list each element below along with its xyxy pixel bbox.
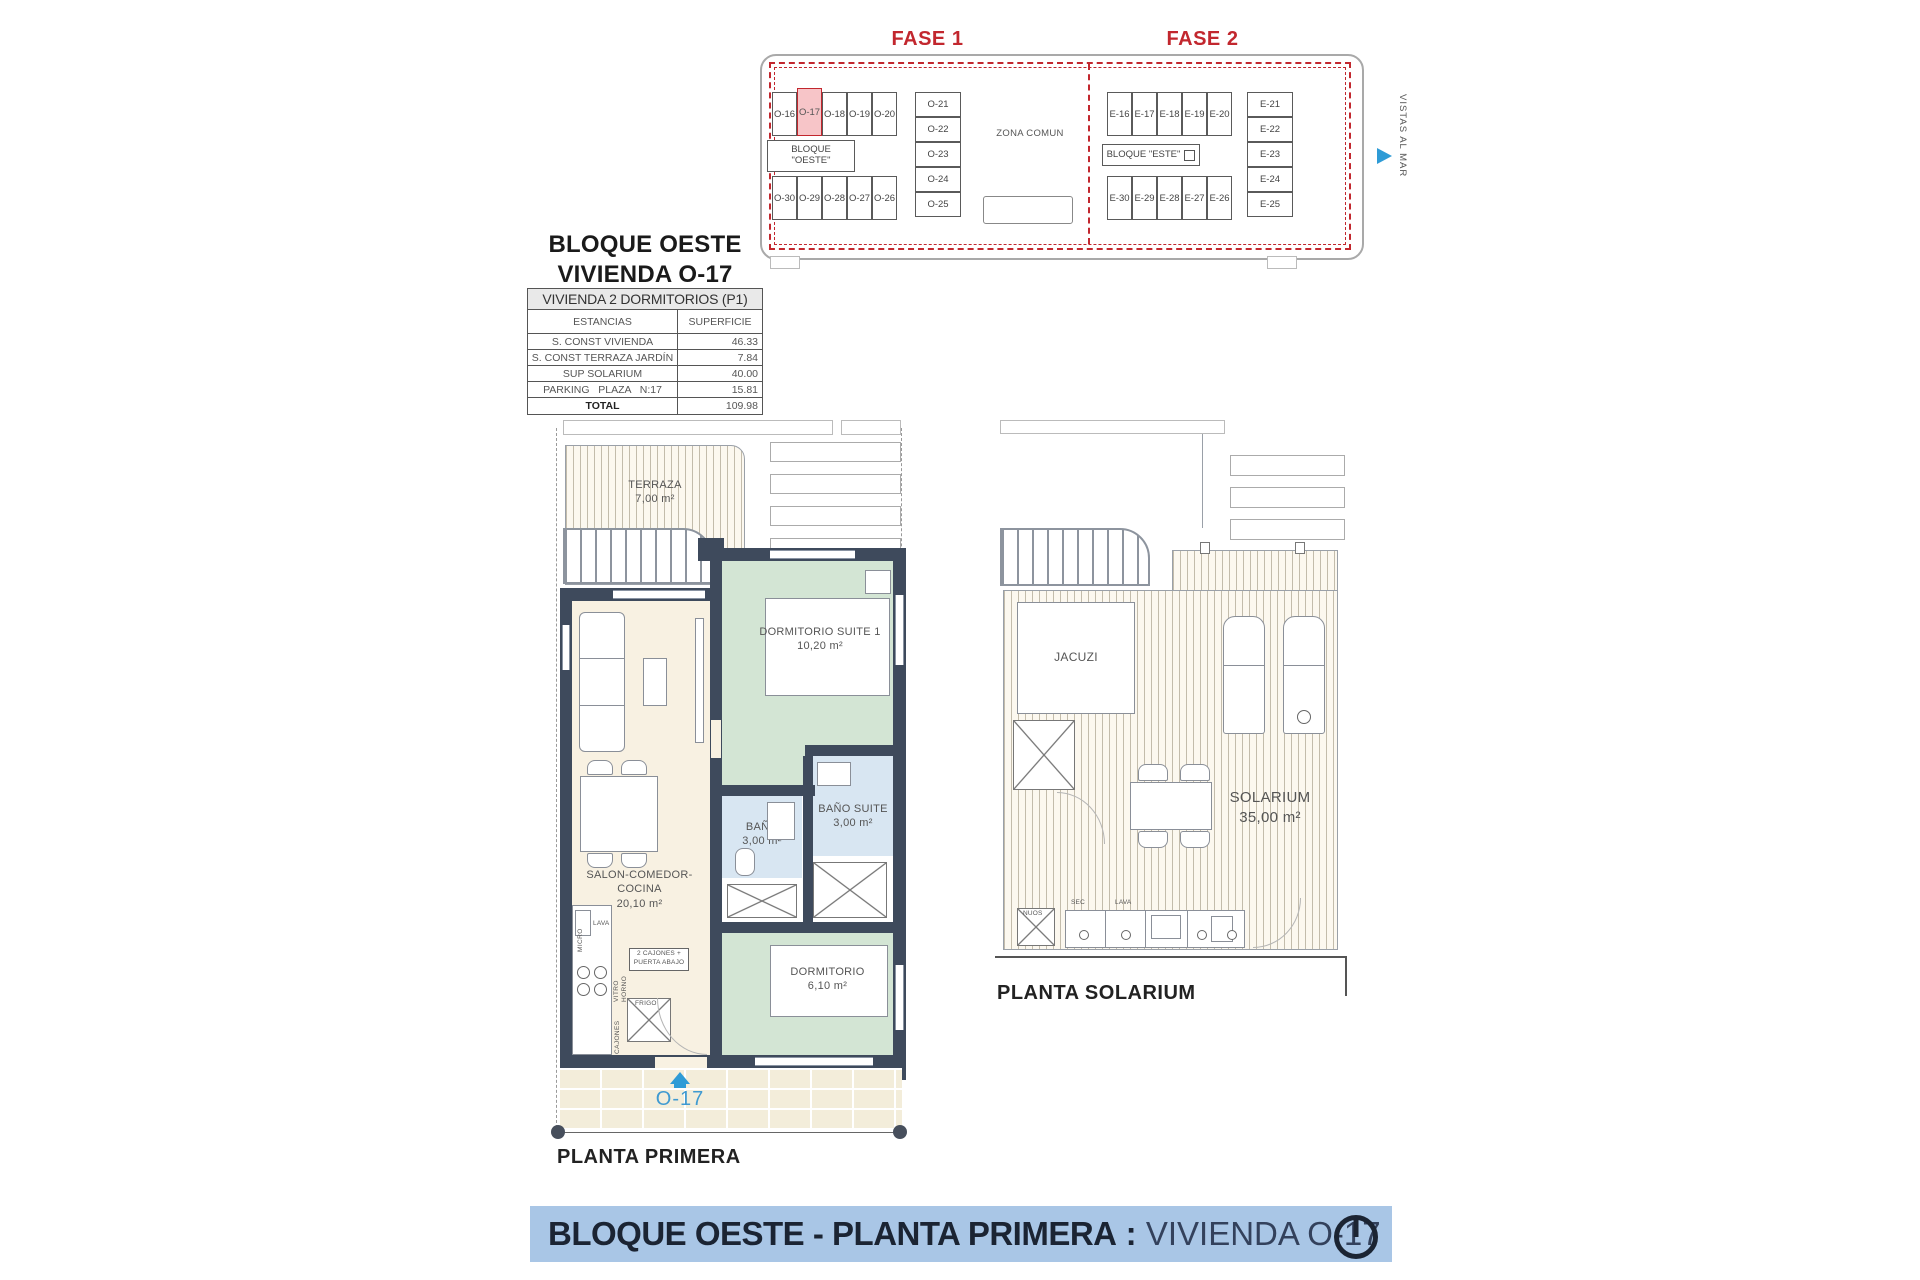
- vistas-al-mar-label: VISTAS AL MAR: [1397, 94, 1408, 239]
- counter-divider: [1105, 910, 1106, 948]
- sofa-cushion-line: [579, 705, 625, 706]
- sun-lounger: [1223, 616, 1265, 734]
- unit-cell: E-21: [1247, 92, 1293, 117]
- bloque-oeste-line2: "OESTE": [792, 156, 831, 167]
- dining-chair: [621, 760, 647, 775]
- sofa-cushion-line: [579, 658, 625, 659]
- solarium-label: SOLARIUM 35,00 m²: [1205, 788, 1335, 827]
- solarium-area: 35,00 m²: [1205, 808, 1335, 828]
- unit-cell: E-24: [1247, 167, 1293, 192]
- plot-corner-marker: [893, 1125, 907, 1139]
- planta-solarium-plan: JACUZI SOLARIUM 35,00 m² NUOS SEC LAVA: [995, 420, 1357, 1020]
- lounger-fold-line: [1223, 665, 1265, 666]
- area-row-label: S. CONST VIVIENDA: [528, 334, 678, 349]
- suite-area: 10,20 m²: [750, 639, 890, 653]
- salon-name: SALON-COMEDOR-COCINA: [567, 868, 712, 897]
- north-compass-icon: [1334, 1215, 1378, 1259]
- unit-cell: O-26: [872, 176, 897, 220]
- dining-chair: [587, 760, 613, 775]
- sink-symbol: [1227, 930, 1237, 940]
- sink-symbol: [1079, 930, 1089, 940]
- area-row-label: SUP SOLARIUM: [528, 366, 678, 381]
- dining-table: [580, 776, 658, 852]
- area-row: SUP SOLARIUM 40.00: [528, 365, 762, 381]
- unit-cell: O-23: [915, 142, 961, 167]
- terraza-railing: [563, 528, 713, 584]
- area-table-header-row: ESTANCIAS SUPERFICIE: [528, 309, 762, 333]
- fase1-title: FASE 1: [850, 28, 1005, 51]
- unit-cell: O-18: [822, 92, 847, 136]
- banner-separator: :: [1117, 1215, 1146, 1253]
- unit-cell: E-28: [1157, 176, 1182, 220]
- solarium-name: SOLARIUM: [1205, 788, 1335, 808]
- wall-banosuite-top: [805, 745, 906, 756]
- suite-wardrobe: [813, 862, 887, 918]
- unit-cell: E-20: [1207, 92, 1232, 136]
- deck-post: [1295, 542, 1305, 554]
- unit-cell-highlighted: O-17: [797, 88, 822, 136]
- suite-vestibule: [722, 745, 805, 790]
- wall-partition: [710, 548, 722, 1080]
- unit-tag: O-17: [650, 1088, 710, 1111]
- unit-cell: E-26: [1207, 176, 1232, 220]
- unit-cell: O-19: [847, 92, 872, 136]
- hall-wardrobe: [727, 884, 797, 918]
- area-row: PARKING PLAZA N:17 15.81: [528, 381, 762, 397]
- sea-direction-arrow-icon: [1377, 148, 1392, 164]
- upper-terrace-strip2: [841, 420, 901, 435]
- living-window: [562, 625, 570, 670]
- unit-cell: E-22: [1247, 117, 1293, 142]
- total-value: 109.98: [678, 398, 762, 414]
- entry-door-gap: [655, 1057, 707, 1068]
- kitchen-cajones-label: CAJONES: [614, 1008, 621, 1054]
- terraza-name: TERRAZA: [585, 478, 725, 492]
- area-table: VIVIENDA 2 DORMITORIOS (P1) ESTANCIAS SU…: [527, 288, 763, 415]
- pergola-slat: [1230, 455, 1345, 476]
- kitchen-lava-label: LAVA: [593, 920, 609, 927]
- unit-cell: O-27: [847, 176, 872, 220]
- kitchen-note-line1: 2 CAJONES +: [630, 949, 688, 958]
- plot-line: [995, 956, 1347, 958]
- site-entry-stub-left: [770, 256, 800, 269]
- bloque-este-text: BLOQUE "ESTE": [1107, 150, 1181, 161]
- kitchen-micro-label: MICRO: [577, 912, 584, 952]
- pergola-slat: [1230, 519, 1345, 540]
- tv-unit: [695, 618, 704, 743]
- bloque-este-marker: [1184, 150, 1195, 161]
- area-row: S. CONST TERRAZA JARDÍN 7.84: [528, 349, 762, 365]
- planta-primera-caption: PLANTA PRIMERA: [557, 1146, 741, 1169]
- unit-cell: O-30: [772, 176, 797, 220]
- unit-cell: E-23: [1247, 142, 1293, 167]
- sofa: [579, 612, 625, 752]
- patio-chair: [1180, 831, 1210, 848]
- patio-table: [1130, 782, 1212, 830]
- suite-nightstand: [865, 570, 891, 594]
- dorm-label: DORMITORIO 6,10 m²: [760, 965, 895, 994]
- burner: [577, 966, 590, 979]
- pergola-slat: [770, 506, 901, 526]
- unit-cell: E-27: [1182, 176, 1207, 220]
- planta-solarium-caption: PLANTA SOLARIUM: [997, 982, 1196, 1005]
- counter-divider: [1187, 910, 1188, 948]
- sink-symbol: [1121, 930, 1131, 940]
- deck-post: [1200, 542, 1210, 554]
- counter-divider: [1145, 910, 1146, 948]
- bano-toilet: [735, 848, 755, 876]
- kitchen-horno-label: HORNO: [621, 960, 628, 1002]
- bano-suite-label: BAÑO SUITE 3,00 m²: [810, 802, 896, 831]
- unit-cell: O-28: [822, 176, 847, 220]
- plot-front-line: [555, 1132, 903, 1133]
- plot-corner-marker: [551, 1125, 565, 1139]
- dorm-name: DORMITORIO: [760, 965, 895, 979]
- suite-side-window: [895, 595, 904, 665]
- unit-cell: E-30: [1107, 176, 1132, 220]
- sheet-title-line2: VIVIENDA O-17: [545, 260, 745, 290]
- wall-bano-top: [710, 785, 815, 796]
- dorm-side-window: [895, 965, 904, 1030]
- sheet-title-line1: BLOQUE OESTE: [545, 230, 745, 260]
- suite-sink: [817, 762, 851, 786]
- frigo-label: FRIGO: [635, 1000, 657, 1007]
- plot-boundary-left: [556, 428, 557, 1138]
- fase2-title: FASE 2: [1125, 28, 1280, 51]
- unit-cell: E-18: [1157, 92, 1182, 136]
- unit-cell: E-25: [1247, 192, 1293, 217]
- unit-cell: O-25: [915, 192, 961, 217]
- bano-suite-name: BAÑO SUITE: [810, 802, 896, 816]
- phase-divider: [1088, 64, 1090, 244]
- col-superficie: SUPERFICIE: [678, 310, 762, 333]
- dining-chair: [621, 853, 647, 868]
- suite-name: DORMITORIO SUITE 1: [750, 625, 890, 639]
- patio-chair: [1138, 831, 1168, 848]
- unit-cell: O-29: [797, 176, 822, 220]
- coffee-table: [643, 658, 667, 706]
- zona-comun-label: ZONA COMUN: [980, 128, 1080, 139]
- area-row: S. CONST VIVIENDA 46.33: [528, 333, 762, 349]
- unit-cell: O-16: [772, 92, 797, 136]
- unit-cell: O-21: [915, 92, 961, 117]
- bloque-oeste-label: BLOQUE "OESTE": [767, 140, 855, 172]
- dining-chair: [587, 853, 613, 868]
- burner: [594, 983, 607, 996]
- unit-cell: E-17: [1132, 92, 1157, 136]
- wall-bath-divider: [803, 756, 813, 922]
- area-total-row: TOTAL 109.98: [528, 397, 762, 414]
- jacuzzi-label: JACUZI: [1017, 650, 1135, 666]
- floorplan-sheet: FASE 1 FASE 2 O-16 O-17 O-18 O-19 O-20 B…: [0, 0, 1920, 1280]
- area-row-label: PARKING PLAZA N:17: [528, 382, 678, 397]
- suite-window: [770, 550, 855, 559]
- burner: [594, 966, 607, 979]
- col-estancias: ESTANCIAS: [528, 310, 678, 333]
- site-entry-stub-right: [1267, 256, 1297, 269]
- unit-cell: O-24: [915, 167, 961, 192]
- sink-symbol: [1197, 930, 1207, 940]
- bano-suite-area: 3,00 m²: [810, 816, 896, 830]
- zona-comun-building: [983, 196, 1073, 224]
- unit-cell: E-16: [1107, 92, 1132, 136]
- upper-strip: [1000, 420, 1225, 434]
- bloque-este-label: BLOQUE "ESTE": [1102, 144, 1200, 166]
- patio-chair: [1180, 764, 1210, 781]
- walkway-bricks: [558, 1068, 902, 1130]
- dorm-area: 6,10 m²: [760, 979, 895, 993]
- unit-cell: O-20: [872, 92, 897, 136]
- nuos-label: NUOS: [1023, 910, 1043, 917]
- solarium-railing: [1000, 528, 1150, 586]
- sec-label: SEC: [1071, 899, 1085, 906]
- sheet-title: BLOQUE OESTE VIVIENDA O-17: [545, 230, 745, 290]
- banner-title-bold: BLOQUE OESTE - PLANTA PRIMERA: [548, 1215, 1117, 1253]
- bano-sink: [767, 802, 795, 840]
- lounger-fold-line: [1283, 665, 1325, 666]
- area-row-value: 46.33: [678, 334, 762, 349]
- lava-label: LAVA: [1115, 899, 1131, 906]
- wall-dorm-top: [710, 922, 906, 933]
- plot-line-step: [1345, 956, 1347, 996]
- pergola-slat: [770, 442, 901, 462]
- area-row-value: 40.00: [678, 366, 762, 381]
- area-row-label: S. CONST TERRAZA JARDÍN: [528, 350, 678, 365]
- planta-primera-plan: TERRAZA 7,00 m²: [555, 420, 907, 1180]
- site-plan: FASE 1 FASE 2 O-16 O-17 O-18 O-19 O-20 B…: [755, 28, 1415, 278]
- terraza-slider-window: [613, 590, 705, 599]
- outdoor-shower: [1013, 720, 1075, 790]
- neighbour-divider: [1202, 434, 1203, 528]
- unit-cell: O-22: [915, 117, 961, 142]
- person-figure: [1297, 710, 1311, 724]
- appliance-box: [1151, 915, 1181, 939]
- burner: [577, 983, 590, 996]
- suite-label: DORMITORIO SUITE 1 10,20 m²: [750, 625, 890, 654]
- solarium-deck-upper: [1172, 550, 1338, 592]
- pergola-slat: [1230, 487, 1345, 508]
- kitchen-vitro-label: VITRO: [613, 960, 620, 1002]
- kitchen-note-line2: PUERTA ABAJO: [630, 958, 688, 967]
- unit-cell: E-19: [1182, 92, 1207, 136]
- dorm-window: [755, 1057, 873, 1066]
- upper-terrace-strip: [563, 420, 833, 435]
- footer-banner: BLOQUE OESTE - PLANTA PRIMERA : VIVIENDA…: [530, 1206, 1392, 1262]
- terraza-area: 7,00 m²: [585, 492, 725, 506]
- unit-cell: E-29: [1132, 176, 1157, 220]
- terraza-label: TERRAZA 7,00 m²: [585, 478, 725, 507]
- patio-chair: [1138, 764, 1168, 781]
- suite-door-gap: [711, 720, 721, 758]
- kitchen-note: 2 CAJONES + PUERTA ABAJO: [629, 948, 689, 971]
- area-table-title: VIVIENDA 2 DORMITORIOS (P1): [528, 289, 762, 309]
- pergola-slat: [770, 474, 901, 494]
- area-row-value: 15.81: [678, 382, 762, 397]
- total-label: TOTAL: [528, 398, 678, 414]
- area-row-value: 7.84: [678, 350, 762, 365]
